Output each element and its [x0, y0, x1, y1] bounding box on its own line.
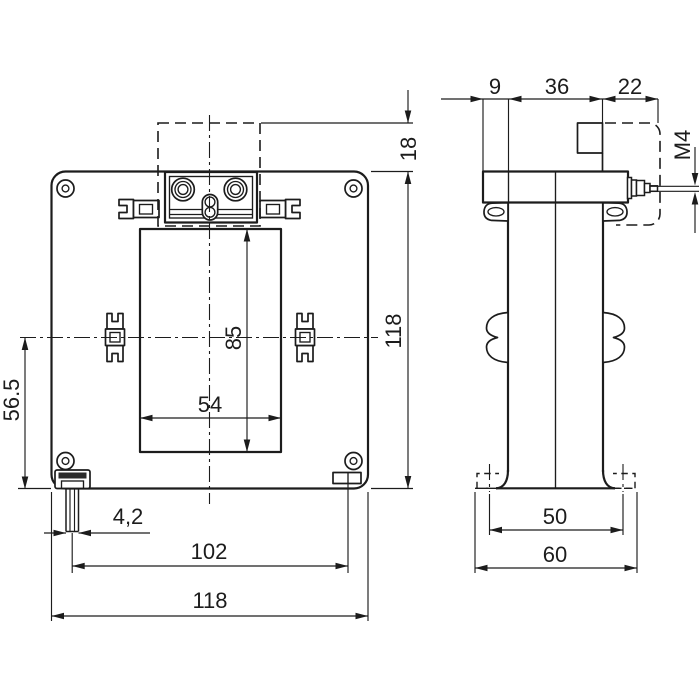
- clip-wing-left: [487, 313, 509, 363]
- dim-body-depth: 36: [545, 74, 569, 99]
- mount-foot-left: [55, 470, 90, 532]
- dim-mount-spacing: 102: [191, 539, 228, 564]
- dim-terminal-thread: M4: [670, 130, 695, 161]
- cover-latch-notch: [578, 123, 603, 172]
- dim-window-height: 85: [221, 326, 246, 350]
- m4-terminal-screw: [628, 178, 658, 199]
- column-base-flare-left: [496, 470, 508, 488]
- column-base-flare-right: [603, 470, 615, 488]
- clip-wing-right: [603, 313, 625, 363]
- dim-slot-width: 4,2: [113, 504, 144, 529]
- dim-center-to-base: 56.5: [0, 379, 24, 422]
- side-view: [475, 99, 660, 492]
- dim-body-height: 118: [381, 313, 406, 348]
- dim-bracket-width: 9: [489, 74, 501, 99]
- dim-cover-depth: 22: [618, 74, 642, 99]
- mount-foot-right: [333, 473, 361, 484]
- dim-cover-projection: 18: [396, 137, 421, 161]
- dim-base-depth: 60: [543, 542, 567, 567]
- technical-drawing-canvas: 18 118 85 54 56.5 4,2 102: [0, 0, 700, 700]
- side-clip-right: [603, 203, 627, 221]
- side-clip-left: [484, 203, 508, 221]
- terminal-block: [165, 172, 257, 223]
- dim-body-width: 118: [192, 588, 227, 613]
- dim-window-width: 54: [198, 392, 222, 417]
- dim-foot-slot-spacing: 50: [543, 504, 567, 529]
